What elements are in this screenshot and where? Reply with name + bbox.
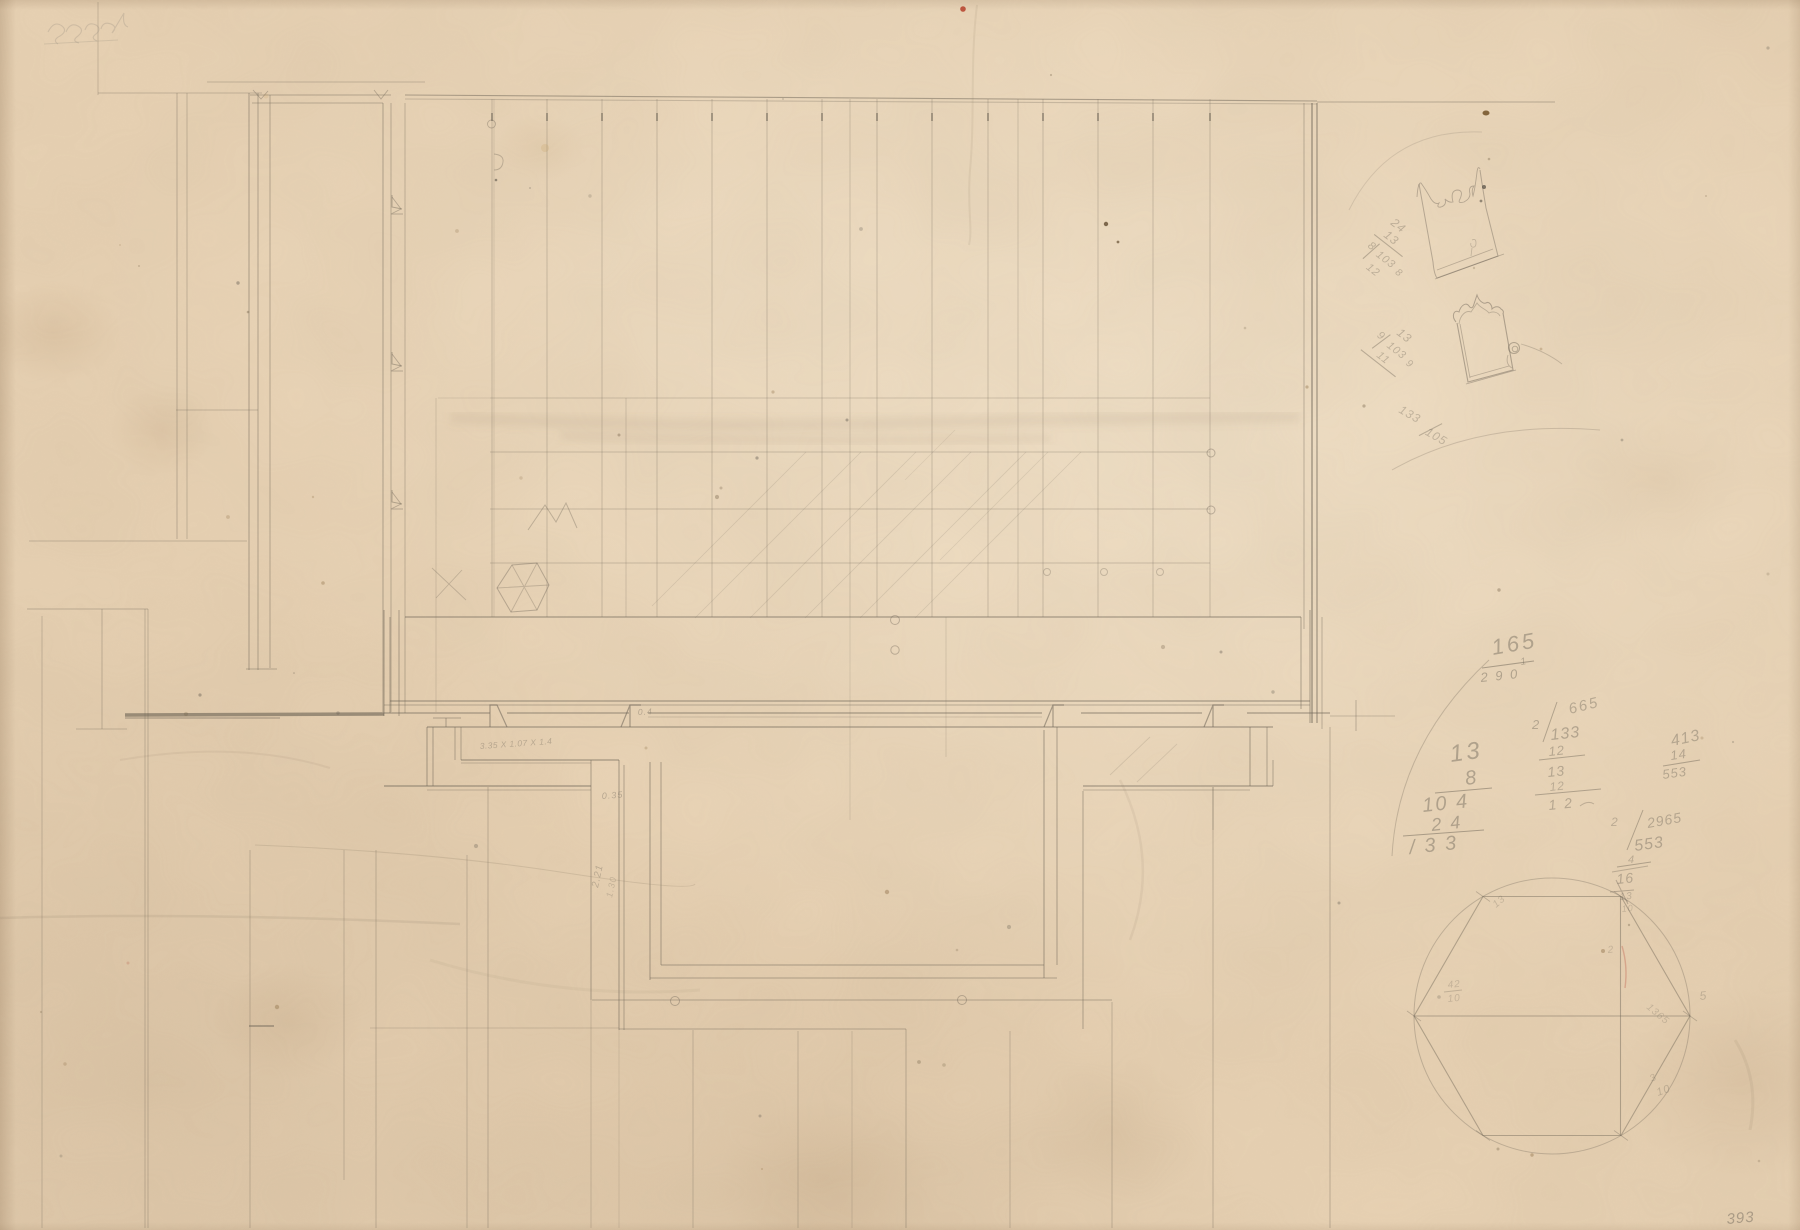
svg-text:0.4: 0.4 xyxy=(638,706,653,717)
svg-text:13: 13 xyxy=(1448,737,1484,768)
svg-text:42: 42 xyxy=(1447,979,1461,991)
svg-text:0.35: 0.35 xyxy=(601,790,623,801)
svg-text:13: 13 xyxy=(1547,762,1566,780)
svg-text:10: 10 xyxy=(1447,993,1461,1005)
svg-text:2: 2 xyxy=(1606,944,1615,956)
svg-text:2: 2 xyxy=(1531,717,1540,732)
svg-text:12: 12 xyxy=(1548,742,1566,759)
svg-text:1 2: 1 2 xyxy=(1548,794,1575,813)
svg-text:5: 5 xyxy=(1699,988,1708,1003)
svg-text:2: 2 xyxy=(1610,815,1619,829)
svg-text:133: 133 xyxy=(1550,724,1581,744)
svg-text:393: 393 xyxy=(1726,1209,1755,1228)
svg-text:12: 12 xyxy=(1549,778,1566,794)
svg-text:14: 14 xyxy=(1669,746,1687,763)
